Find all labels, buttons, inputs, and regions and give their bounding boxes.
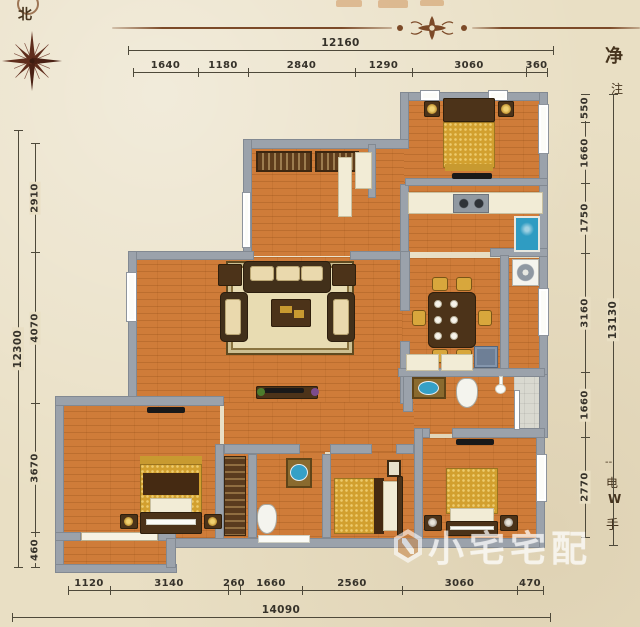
dimension-label: 3060 xyxy=(454,60,483,71)
dimension-tick xyxy=(31,403,40,404)
dimension-label: 14090 xyxy=(262,604,301,616)
dimension-label: 2560 xyxy=(337,578,366,589)
dimension-tick xyxy=(543,586,544,595)
dimension-label: 4070 xyxy=(30,311,41,344)
dimension-tick xyxy=(14,567,23,568)
dimension-label: 1660 xyxy=(256,578,285,589)
dimension-tick xyxy=(581,253,590,254)
dimension-label: 3160 xyxy=(580,296,591,329)
watermark: 小宅宅配 xyxy=(394,520,592,572)
floor-plan-page: 1216016401180284012903060360112031402601… xyxy=(0,0,640,627)
dimension-label: 12300 xyxy=(12,327,24,370)
dimension-tick xyxy=(31,567,40,568)
dimension-label: 470 xyxy=(519,578,541,589)
dimension-tick xyxy=(412,68,413,77)
dimension-label: 260 xyxy=(223,578,245,589)
dimension-line xyxy=(133,72,547,73)
dimension-tick xyxy=(14,130,23,131)
dimension-tick xyxy=(402,586,403,595)
dimension-tick xyxy=(609,94,618,95)
dimension-label: 1660 xyxy=(580,136,591,169)
watermark-logo-icon xyxy=(394,529,422,563)
dimension-label: 12160 xyxy=(321,37,360,49)
dimension-tick xyxy=(302,586,303,595)
dimension-label: 360 xyxy=(525,60,547,71)
dimension-label: 1120 xyxy=(74,578,103,589)
dimension-total-line xyxy=(128,50,553,51)
dimension-label: 1750 xyxy=(580,201,591,234)
dimension-label: 1180 xyxy=(208,60,237,71)
dimension-tick xyxy=(517,586,518,595)
dimension-tick xyxy=(240,586,241,595)
dimension-tick xyxy=(581,372,590,373)
dimension-tick xyxy=(68,586,69,595)
dimension-tick xyxy=(31,532,40,533)
dimension-tick xyxy=(31,143,40,144)
dimension-line xyxy=(68,590,543,591)
dimension-tick xyxy=(133,68,134,77)
dimension-tick xyxy=(355,68,356,77)
dimension-tick xyxy=(547,68,548,77)
dimension-total-line xyxy=(12,617,550,618)
dimension-tick xyxy=(553,46,554,55)
dimension-label: 550 xyxy=(580,95,591,121)
dimension-tick xyxy=(581,183,590,184)
dimension-label: 3670 xyxy=(30,451,41,484)
dimension-label: 1640 xyxy=(151,60,180,71)
dimension-label: 3140 xyxy=(154,578,183,589)
dimension-tick xyxy=(609,545,618,546)
dimension-label: 1290 xyxy=(369,60,398,71)
dimension-tick xyxy=(581,122,590,123)
dimension-label: 1660 xyxy=(580,388,591,421)
dimension-label: 13130 xyxy=(607,298,619,341)
dimension-tick xyxy=(128,46,129,55)
dimension-tick xyxy=(248,68,249,77)
dimension-label: 2840 xyxy=(287,60,316,71)
dimension-label: 3060 xyxy=(445,578,474,589)
dimension-tick xyxy=(110,586,111,595)
dimension-tick xyxy=(31,252,40,253)
dimension-tick xyxy=(550,613,551,622)
dimension-label: 2770 xyxy=(580,470,591,503)
dimension-tick xyxy=(581,437,590,438)
dimension-label: 2910 xyxy=(30,181,41,214)
watermark-text: 小宅宅配 xyxy=(428,520,592,572)
dimension-tick xyxy=(12,613,13,622)
dimension-tick xyxy=(198,68,199,77)
dimension-label: 460 xyxy=(30,536,41,562)
